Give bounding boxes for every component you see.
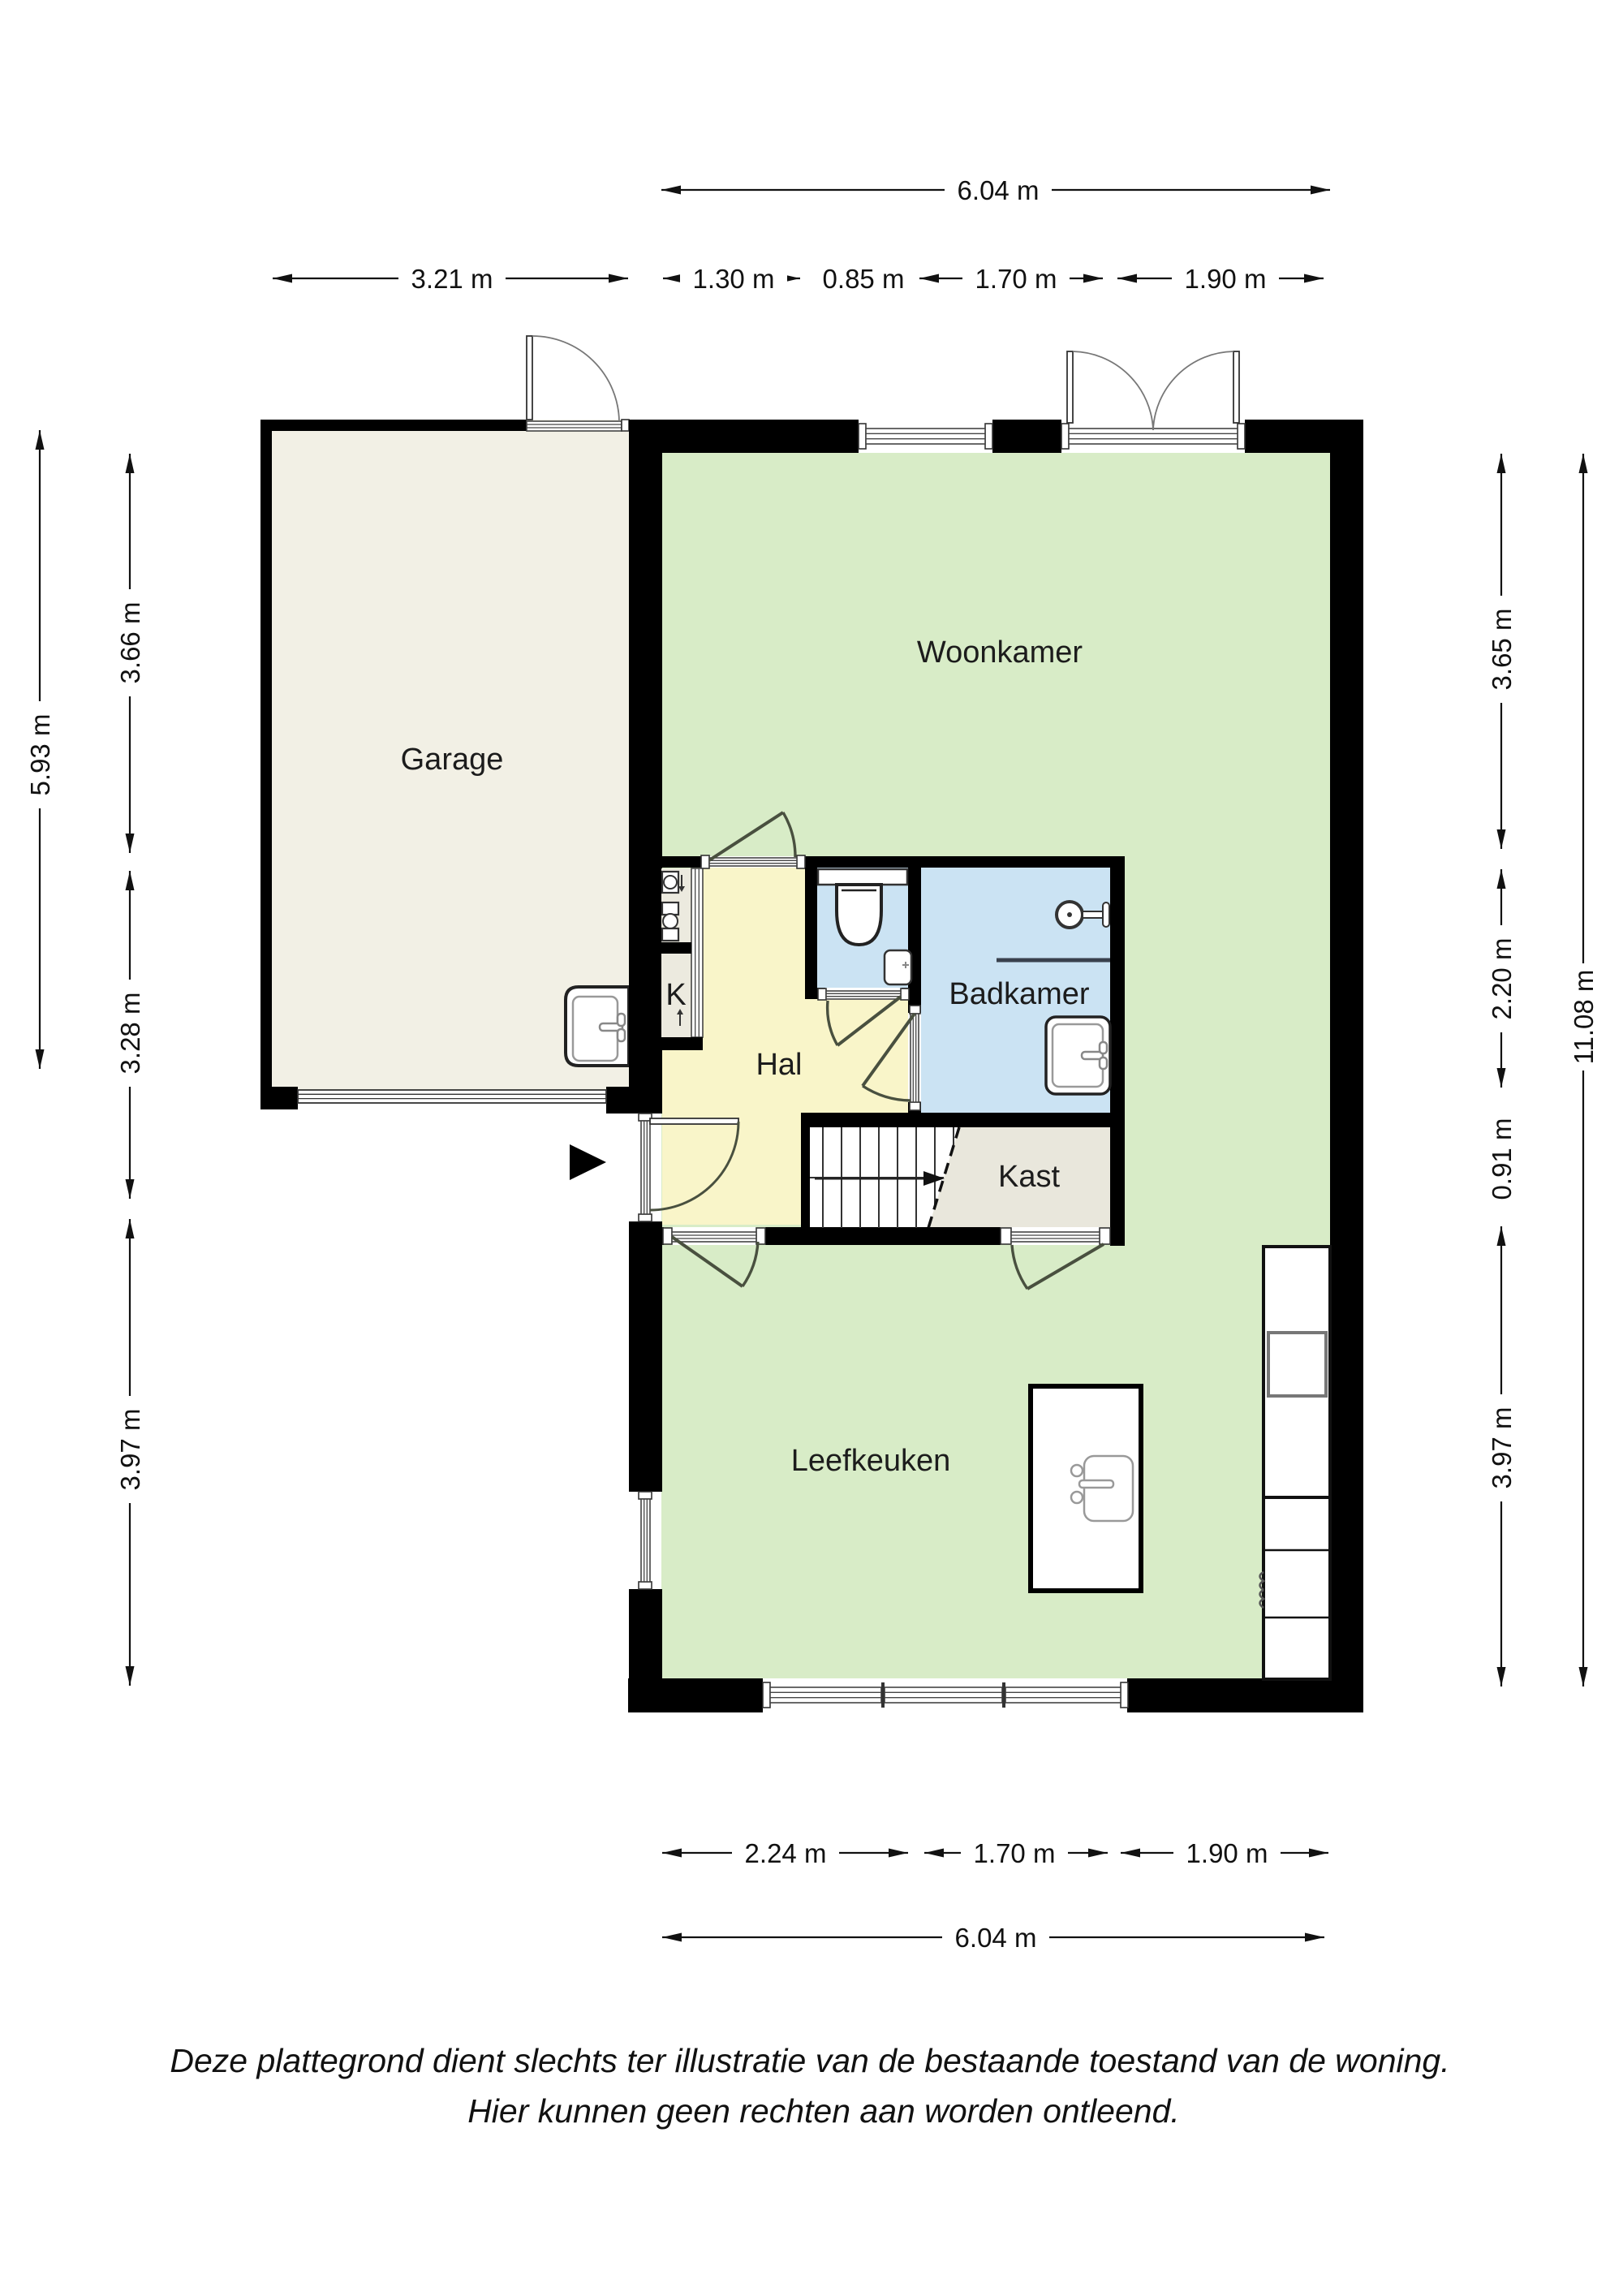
svg-text:1.90 m: 1.90 m	[1186, 1838, 1268, 1868]
svg-text:1.30 m: 1.30 m	[693, 264, 775, 294]
svg-text:Woonkamer: Woonkamer	[917, 635, 1083, 670]
svg-text:0.91 m: 0.91 m	[1487, 1118, 1517, 1200]
svg-text:Deze plattegrond dient slechts: Deze plattegrond dient slechts ter illus…	[170, 2042, 1449, 2079]
svg-text:Kast: Kast	[998, 1160, 1060, 1194]
svg-text:2.24 m: 2.24 m	[745, 1838, 827, 1868]
svg-text:3.66 m: 3.66 m	[115, 602, 145, 684]
svg-text:Badkamer: Badkamer	[949, 977, 1090, 1011]
svg-text:3.28 m: 3.28 m	[115, 993, 145, 1075]
svg-text:1.70 m: 1.70 m	[975, 264, 1057, 294]
svg-text:3.97 m: 3.97 m	[1487, 1407, 1517, 1489]
svg-text:Hal: Hal	[756, 1048, 802, 1082]
svg-text:0.85 m: 0.85 m	[823, 264, 905, 294]
svg-text:1.90 m: 1.90 m	[1185, 264, 1267, 294]
svg-text:3.21 m: 3.21 m	[411, 264, 493, 294]
svg-text:11.08 m: 11.08 m	[1569, 970, 1599, 1065]
svg-text:Garage: Garage	[401, 743, 504, 777]
svg-text:Hier kunnen geen rechten aan w: Hier kunnen geen rechten aan worden ontl…	[467, 2092, 1180, 2130]
svg-text:3.65 m: 3.65 m	[1487, 609, 1517, 691]
svg-text:5.93 m: 5.93 m	[25, 714, 55, 796]
svg-text:K: K	[665, 978, 686, 1012]
svg-text:6.04 m: 6.04 m	[958, 175, 1040, 205]
svg-text:3.97 m: 3.97 m	[115, 1409, 145, 1491]
svg-text:Leefkeuken: Leefkeuken	[791, 1444, 951, 1478]
svg-text:2.20 m: 2.20 m	[1487, 938, 1517, 1020]
svg-text:1.70 m: 1.70 m	[974, 1838, 1056, 1868]
svg-text:6.04 m: 6.04 m	[955, 1923, 1037, 1953]
